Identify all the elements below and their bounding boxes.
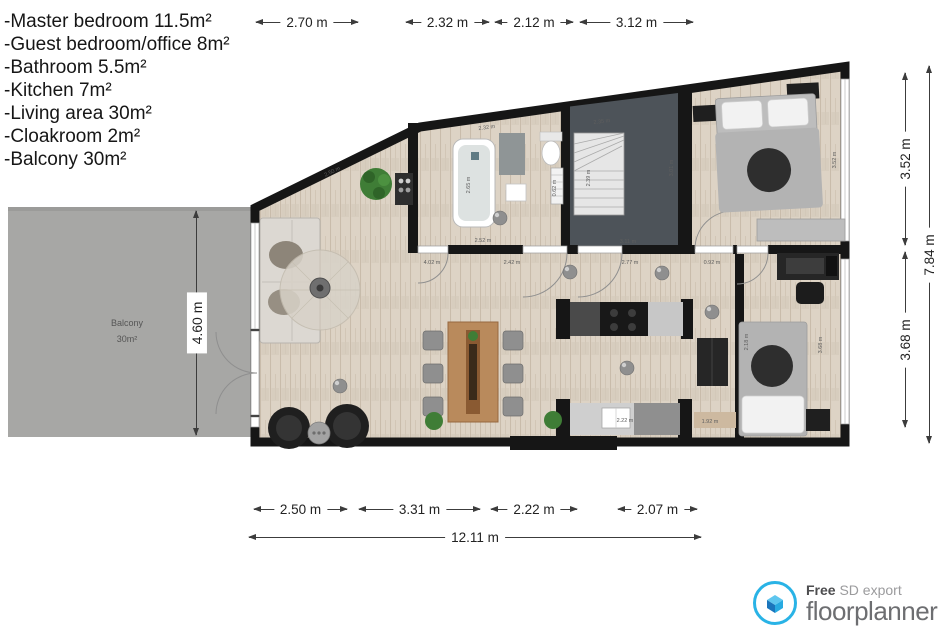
dimension-label: 2.07 m <box>631 502 684 518</box>
micro-dim: 4.02 m <box>424 260 441 266</box>
wall-kitchen-cap-1 <box>556 299 570 339</box>
appliance <box>395 173 413 205</box>
dimension-bottom-4: 2.07 m <box>618 509 697 510</box>
door-threshold-guest <box>737 246 768 253</box>
dimension-top-4: 3.12 m <box>580 22 693 23</box>
desk-surface <box>786 258 824 274</box>
dimension-label: 3.31 m <box>393 502 446 518</box>
legend-item-kitchen: -Kitchen 7m² <box>4 79 230 102</box>
door-threshold-master <box>695 246 733 253</box>
ceiling-lamp <box>705 305 719 319</box>
dimension-label: 3.52 m <box>897 131 915 186</box>
window-living-small <box>251 417 259 427</box>
table-plant <box>468 331 478 341</box>
door-threshold-living <box>418 246 448 253</box>
dimension-label: 4.60 m <box>187 293 207 354</box>
dining-chair <box>503 364 523 383</box>
desk-chair <box>796 282 824 304</box>
dimension-label: 7.84 m <box>921 227 939 282</box>
sink <box>506 184 526 201</box>
dimension-right-2: 3.68 m <box>905 252 906 427</box>
legend-item-balcony: -Balcony 30m² <box>4 148 230 171</box>
wall-corridor-4 <box>733 245 737 254</box>
micro-dim: 2.39 m <box>586 169 592 186</box>
wall-corridor-1 <box>448 245 523 254</box>
floorplanner-logo-icon <box>753 581 797 625</box>
wall-kitchen-cap-4 <box>678 399 692 439</box>
toilet-tank <box>540 132 562 141</box>
ceiling-lamp <box>493 211 507 225</box>
dimension-top-2: 2.32 m <box>406 22 489 23</box>
kitchen-counter-bottom-dark <box>634 403 680 435</box>
floorplan-export-canvas: -Master bedroom 11.5m² -Guest bedroom/of… <box>0 0 939 631</box>
micro-dim: 0.62 m <box>552 179 558 196</box>
micro-dim: 3.52 m <box>832 151 838 168</box>
balcony-edge <box>8 207 258 211</box>
wall-corridor-2 <box>567 245 578 254</box>
wall-stair-master <box>678 88 692 250</box>
staircase <box>574 133 624 215</box>
dining-chair <box>503 397 523 416</box>
shower-mat <box>499 133 525 175</box>
round-cushion <box>751 345 793 387</box>
micro-dim: 1.92 m <box>702 419 719 425</box>
table-centerpiece <box>469 344 477 400</box>
ceiling-lamp <box>333 379 347 393</box>
bathtub-faucet <box>471 152 479 160</box>
pillow <box>721 100 762 129</box>
pillow <box>767 98 808 127</box>
dining-chair <box>423 364 443 383</box>
brand-name: floorplanner <box>806 598 937 624</box>
micro-dim: 2.22 m <box>617 418 634 424</box>
dimension-right-1: 3.52 m <box>905 73 906 245</box>
dimension-label: 2.32 m <box>421 15 474 31</box>
dimension-label: 3.12 m <box>610 15 663 31</box>
micro-dim: 3.68 m <box>818 336 824 353</box>
kitchen-counter-top-end <box>648 302 683 336</box>
dimension-label: 12.11 m <box>445 530 505 546</box>
micro-dim: 3.01 m <box>669 159 675 176</box>
ceiling-lamp <box>655 266 669 280</box>
dimension-top-1: 2.70 m <box>256 22 358 23</box>
micro-dim: 3.11 m <box>620 239 637 245</box>
micro-dim: 2.18 m <box>744 333 750 350</box>
legend-item-bathroom: -Bathroom 5.5m² <box>4 56 230 79</box>
micro-dim: 2.42 m <box>504 260 521 266</box>
legend-item-living-area: -Living area 30m² <box>4 102 230 125</box>
plant <box>544 411 562 429</box>
legend-item-master-bedroom: -Master bedroom 11.5m² <box>4 10 230 33</box>
dimension-label: 2.70 m <box>280 15 333 31</box>
bedroom-bench <box>757 219 845 241</box>
dimension-bottom-2: 3.31 m <box>359 509 480 510</box>
dimension-label: 3.68 m <box>897 312 915 367</box>
door-threshold-stairwell <box>578 246 622 253</box>
dimension-label: 2.12 m <box>507 15 560 31</box>
door-threshold-bathroom <box>523 246 567 253</box>
dimension-bottom-1: 2.50 m <box>254 509 347 510</box>
floorplanner-logo: Free SD export floorplanner <box>753 581 937 625</box>
legend-item-cloakroom: -Cloakroom 2m² <box>4 125 230 148</box>
dining-chair <box>503 331 523 350</box>
room-legend: -Master bedroom 11.5m² -Guest bedroom/of… <box>4 10 230 171</box>
dining-chair <box>423 331 443 350</box>
toilet-bowl <box>542 141 560 165</box>
micro-dim: 2.77 m <box>622 260 639 266</box>
cooktop <box>600 302 648 336</box>
wall-corridor-3 <box>622 245 695 254</box>
plant <box>425 412 443 430</box>
guest-bed-pillow <box>742 396 804 433</box>
ceiling-lamp <box>620 361 634 375</box>
wall-corridor-5 <box>768 245 845 254</box>
nightstand <box>693 105 718 122</box>
floorplanner-logo-text: Free SD export floorplanner <box>806 583 937 624</box>
balcony-name-label: Balcony <box>111 318 144 328</box>
balcony-area-label: 30m² <box>117 334 138 344</box>
ceiling-lamp <box>563 265 577 279</box>
dimension-right-total: 7.84 m <box>929 66 930 443</box>
cube-icon <box>763 591 787 615</box>
dimension-bottom-3: 2.22 m <box>491 509 577 510</box>
dimension-top-3: 2.12 m <box>495 22 573 23</box>
legend-item-guest-bedroom: -Guest bedroom/office 8m² <box>4 33 230 56</box>
micro-dim: 2.65 m <box>466 176 472 193</box>
dimension-bottom-total: 12.11 m <box>249 537 701 538</box>
micro-dim: 0.92 m <box>704 260 721 266</box>
dimension-label: 2.22 m <box>507 502 560 518</box>
bedside-unit <box>806 409 830 431</box>
desk-monitor <box>826 256 837 276</box>
dimension-left-balcony: 4.60 m <box>196 211 197 435</box>
dimension-label: 2.50 m <box>274 502 327 518</box>
micro-dim: 2.52 m <box>475 238 492 244</box>
wardrobe <box>697 338 728 386</box>
